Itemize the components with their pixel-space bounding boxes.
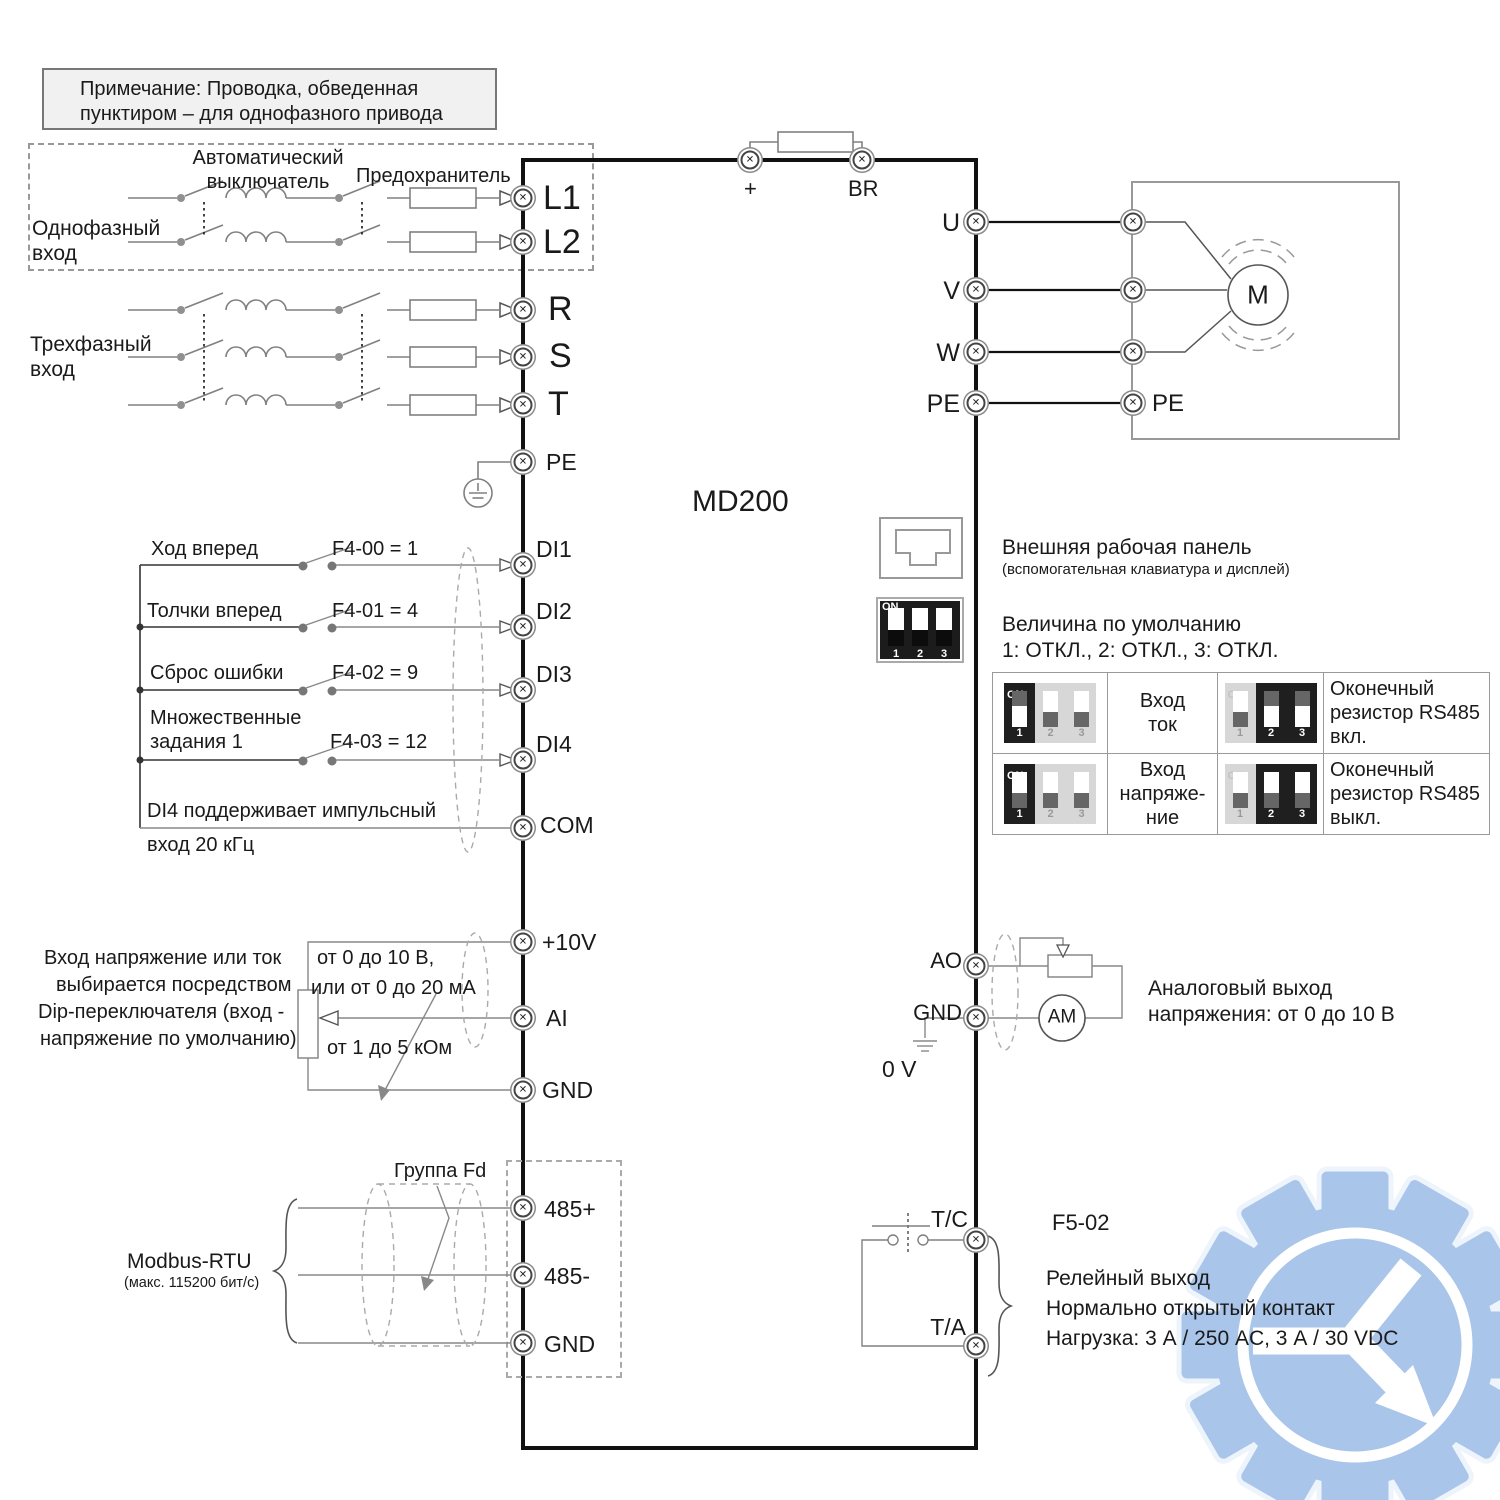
terminal-label-w: W xyxy=(920,338,960,368)
di4-pulse-note-line2: вход 20 кГц xyxy=(147,833,254,857)
dip-default-values: 1: ОТКЛ., 2: ОТКЛ., 3: ОТКЛ. xyxy=(1002,638,1278,663)
terminal-di3 xyxy=(514,681,533,700)
note-box: Примечание: Проводка, обведенная пунктир… xyxy=(42,68,497,130)
terminal-ao xyxy=(967,957,986,976)
note-line1: Примечание: Проводка, обведенная xyxy=(80,77,487,102)
dip-default-title: Величина по умолчанию xyxy=(1002,612,1241,637)
terminal-label-di1: DI1 xyxy=(536,536,572,564)
three-phase-label: Трехфазный вход xyxy=(30,332,152,382)
terminal-motor-pe xyxy=(1124,394,1143,413)
dip-switch-default-icon: ON 1 2 3 xyxy=(876,597,964,663)
terminal-r xyxy=(514,301,533,320)
terminal-label-pe-out: PE xyxy=(905,389,960,419)
rs485-group-label: Группа Fd xyxy=(394,1159,486,1183)
terminal-u xyxy=(967,213,986,232)
terminal-label-com: COM xyxy=(540,812,594,840)
dip-switch-voltage-icon: ON 123 xyxy=(1004,764,1096,824)
analog-out-desc-line1: Аналоговый выход xyxy=(1148,976,1332,1001)
note-line2: пунктиром – для однофазного привода xyxy=(80,102,487,127)
single-phase-label: Однофазный вход xyxy=(32,216,160,266)
mode-voltage-label: Входнапряже-ние xyxy=(1108,754,1218,834)
terminal-com xyxy=(514,819,533,838)
terminal-label-di2: DI2 xyxy=(536,598,572,626)
terminal-motor-v xyxy=(1124,281,1143,300)
terminal-w xyxy=(967,343,986,362)
motor-pe-label: PE xyxy=(1152,390,1184,419)
terminal-485p xyxy=(514,1199,533,1218)
dip-cell-rs485-off: ON 123 xyxy=(1218,754,1324,834)
di2-param-label: F4-01 = 4 xyxy=(332,599,418,623)
terminal-v xyxy=(967,281,986,300)
analog-in-desc-line4: напряжение по умолчанию) xyxy=(40,1027,297,1051)
rs485-on-label: Оконечныйрезистор RS485вкл. xyxy=(1324,673,1489,754)
relay-desc-line2: Нормально открытый контакт xyxy=(1046,1296,1335,1321)
analog-meter-label: AM xyxy=(1048,1007,1077,1030)
relay-desc-line3: Нагрузка: 3 А / 250 AC, 3 А / 30 VDC xyxy=(1046,1326,1398,1351)
mode-current-label: Входток xyxy=(1108,673,1218,754)
terminal-label-v: V xyxy=(920,276,960,306)
terminal-s xyxy=(514,348,533,367)
terminal-ta xyxy=(967,1337,986,1356)
terminal-di4 xyxy=(514,751,533,770)
terminal-pe xyxy=(514,453,533,472)
dip-switch-rs485-on-icon: ON 123 xyxy=(1225,683,1317,743)
terminal-ai xyxy=(514,1009,533,1028)
breaker-label: Автоматический выключатель xyxy=(182,146,354,194)
terminal-gnd-485 xyxy=(514,1334,533,1353)
terminal-motor-u xyxy=(1124,213,1143,232)
terminal-label-u: U xyxy=(920,208,960,238)
terminal-t xyxy=(514,396,533,415)
terminal-label-l1: L1 xyxy=(543,178,581,219)
zero-volt-label: 0 V xyxy=(882,1056,917,1084)
relay-desc-line1: Релейный выход xyxy=(1046,1266,1210,1291)
modbus-speed-label: (макс. 115200 бит/с) xyxy=(124,1275,259,1292)
di3-function-label: Сброс ошибки xyxy=(150,661,283,685)
di1-function-label: Ход вперед xyxy=(151,537,258,561)
terminal-label-gnd-ao: GND xyxy=(904,1000,962,1026)
terminal-label-di4: DI4 xyxy=(536,731,572,759)
rj45-jack-icon xyxy=(879,517,963,579)
terminal-label-gnd-ai: GND xyxy=(542,1077,593,1105)
terminal-di1 xyxy=(514,556,533,575)
terminal-10v xyxy=(514,933,533,952)
dip-cell-current: ON 123 xyxy=(993,673,1108,754)
terminal-label-gnd-485: GND xyxy=(544,1331,595,1359)
relay-param-label: F5-02 xyxy=(1052,1210,1109,1236)
modbus-label: Modbus-RTU xyxy=(127,1249,251,1274)
terminal-label-ai: AI xyxy=(546,1005,568,1033)
terminal-label-ta: T/A xyxy=(918,1314,966,1342)
terminal-485n xyxy=(514,1266,533,1285)
fuse-label: Предохранитель xyxy=(356,164,511,188)
panel-subtitle: (вспомогательная клавиатура и дисплей) xyxy=(1002,561,1290,579)
terminal-gnd-ai xyxy=(514,1081,533,1100)
analog-in-desc-line1: Вход напряжение или ток xyxy=(44,946,281,970)
terminal-pe-out xyxy=(967,394,986,413)
analog-in-range-line2: или от 0 до 20 мА xyxy=(311,976,476,1000)
terminal-label-485p: 485+ xyxy=(544,1196,596,1224)
di3-param-label: F4-02 = 9 xyxy=(332,661,418,685)
dip-switch-rs485-off-icon: ON 123 xyxy=(1225,764,1317,824)
terminal-label-di3: DI3 xyxy=(536,661,572,689)
terminal-tc xyxy=(967,1231,986,1250)
terminal-l2 xyxy=(514,233,533,252)
wiring-diagram: Примечание: Проводка, обведенная пунктир… xyxy=(0,0,1500,1500)
di1-param-label: F4-00 = 1 xyxy=(332,537,418,561)
terminal-label-r: R xyxy=(548,289,573,330)
terminal-l1 xyxy=(514,189,533,208)
dip-cell-voltage: ON 123 xyxy=(993,754,1108,834)
terminal-gnd-ao xyxy=(967,1009,986,1028)
motor-label: M xyxy=(1247,279,1269,310)
terminal-plus xyxy=(741,151,760,170)
terminal-br xyxy=(853,151,872,170)
panel-title: Внешняя рабочая панель xyxy=(1002,535,1252,560)
di4-pulse-note-line1: DI4 поддерживает импульсный xyxy=(147,799,436,823)
terminal-motor-w xyxy=(1124,343,1143,362)
terminal-label-l2: L2 xyxy=(543,222,581,263)
terminal-label-plus: + xyxy=(744,176,757,202)
analog-in-desc-line2: выбирается посредством xyxy=(56,973,292,997)
dip-cell-rs485-on: ON 123 xyxy=(1218,673,1324,754)
terminal-label-pe: PE xyxy=(546,449,577,477)
analog-out-desc-line2: напряжения: от 0 до 10 В xyxy=(1148,1002,1395,1027)
terminal-label-ao: AO xyxy=(922,948,962,974)
analog-in-resistance: от 1 до 5 кОм xyxy=(327,1036,452,1060)
terminal-label-s: S xyxy=(549,336,572,377)
terminal-label-br: BR xyxy=(848,176,879,202)
di4-function-label: Множественные задания 1 xyxy=(150,706,301,754)
dip-settings-table: ON 123 Входток ON 123 Оконечныйрезистор … xyxy=(992,672,1490,835)
terminal-label-10v: +10V xyxy=(542,929,596,957)
model-label: MD200 xyxy=(692,484,789,520)
dip-switch-current-icon: ON 123 xyxy=(1004,683,1096,743)
terminal-di2 xyxy=(514,618,533,637)
analog-in-range-line1: от 0 до 10 В, xyxy=(317,946,434,970)
analog-in-desc-line3: Dip-переключателя (вход - xyxy=(38,1000,284,1024)
rs485-off-label: Оконечныйрезистор RS485выкл. xyxy=(1324,754,1489,834)
di2-function-label: Толчки вперед xyxy=(147,599,282,623)
di4-param-label: F4-03 = 12 xyxy=(330,730,427,754)
terminal-label-t: T xyxy=(548,384,569,425)
terminal-label-485n: 485- xyxy=(544,1263,590,1291)
terminal-label-tc: T/C xyxy=(924,1206,968,1234)
